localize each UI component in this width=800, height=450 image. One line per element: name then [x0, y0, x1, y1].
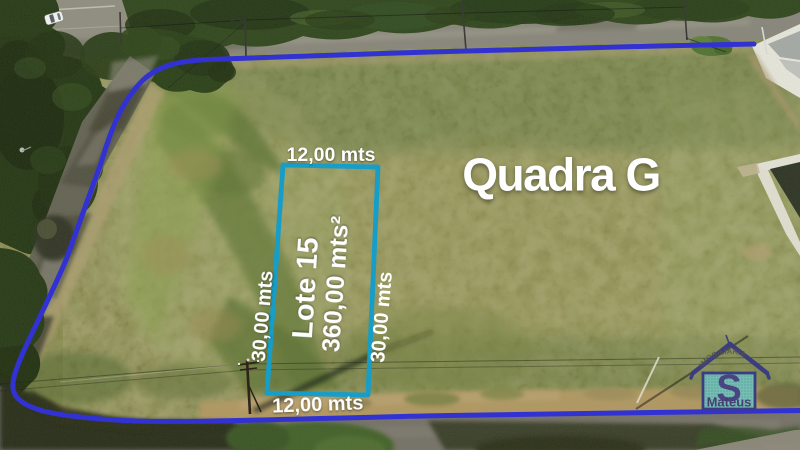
svg-text:Quadra G: Quadra G: [462, 149, 660, 201]
svg-text:12,00 mts: 12,00 mts: [272, 392, 364, 417]
svg-text:Mateus: Mateus: [707, 395, 752, 410]
svg-text:12,00 mts: 12,00 mts: [287, 144, 376, 166]
